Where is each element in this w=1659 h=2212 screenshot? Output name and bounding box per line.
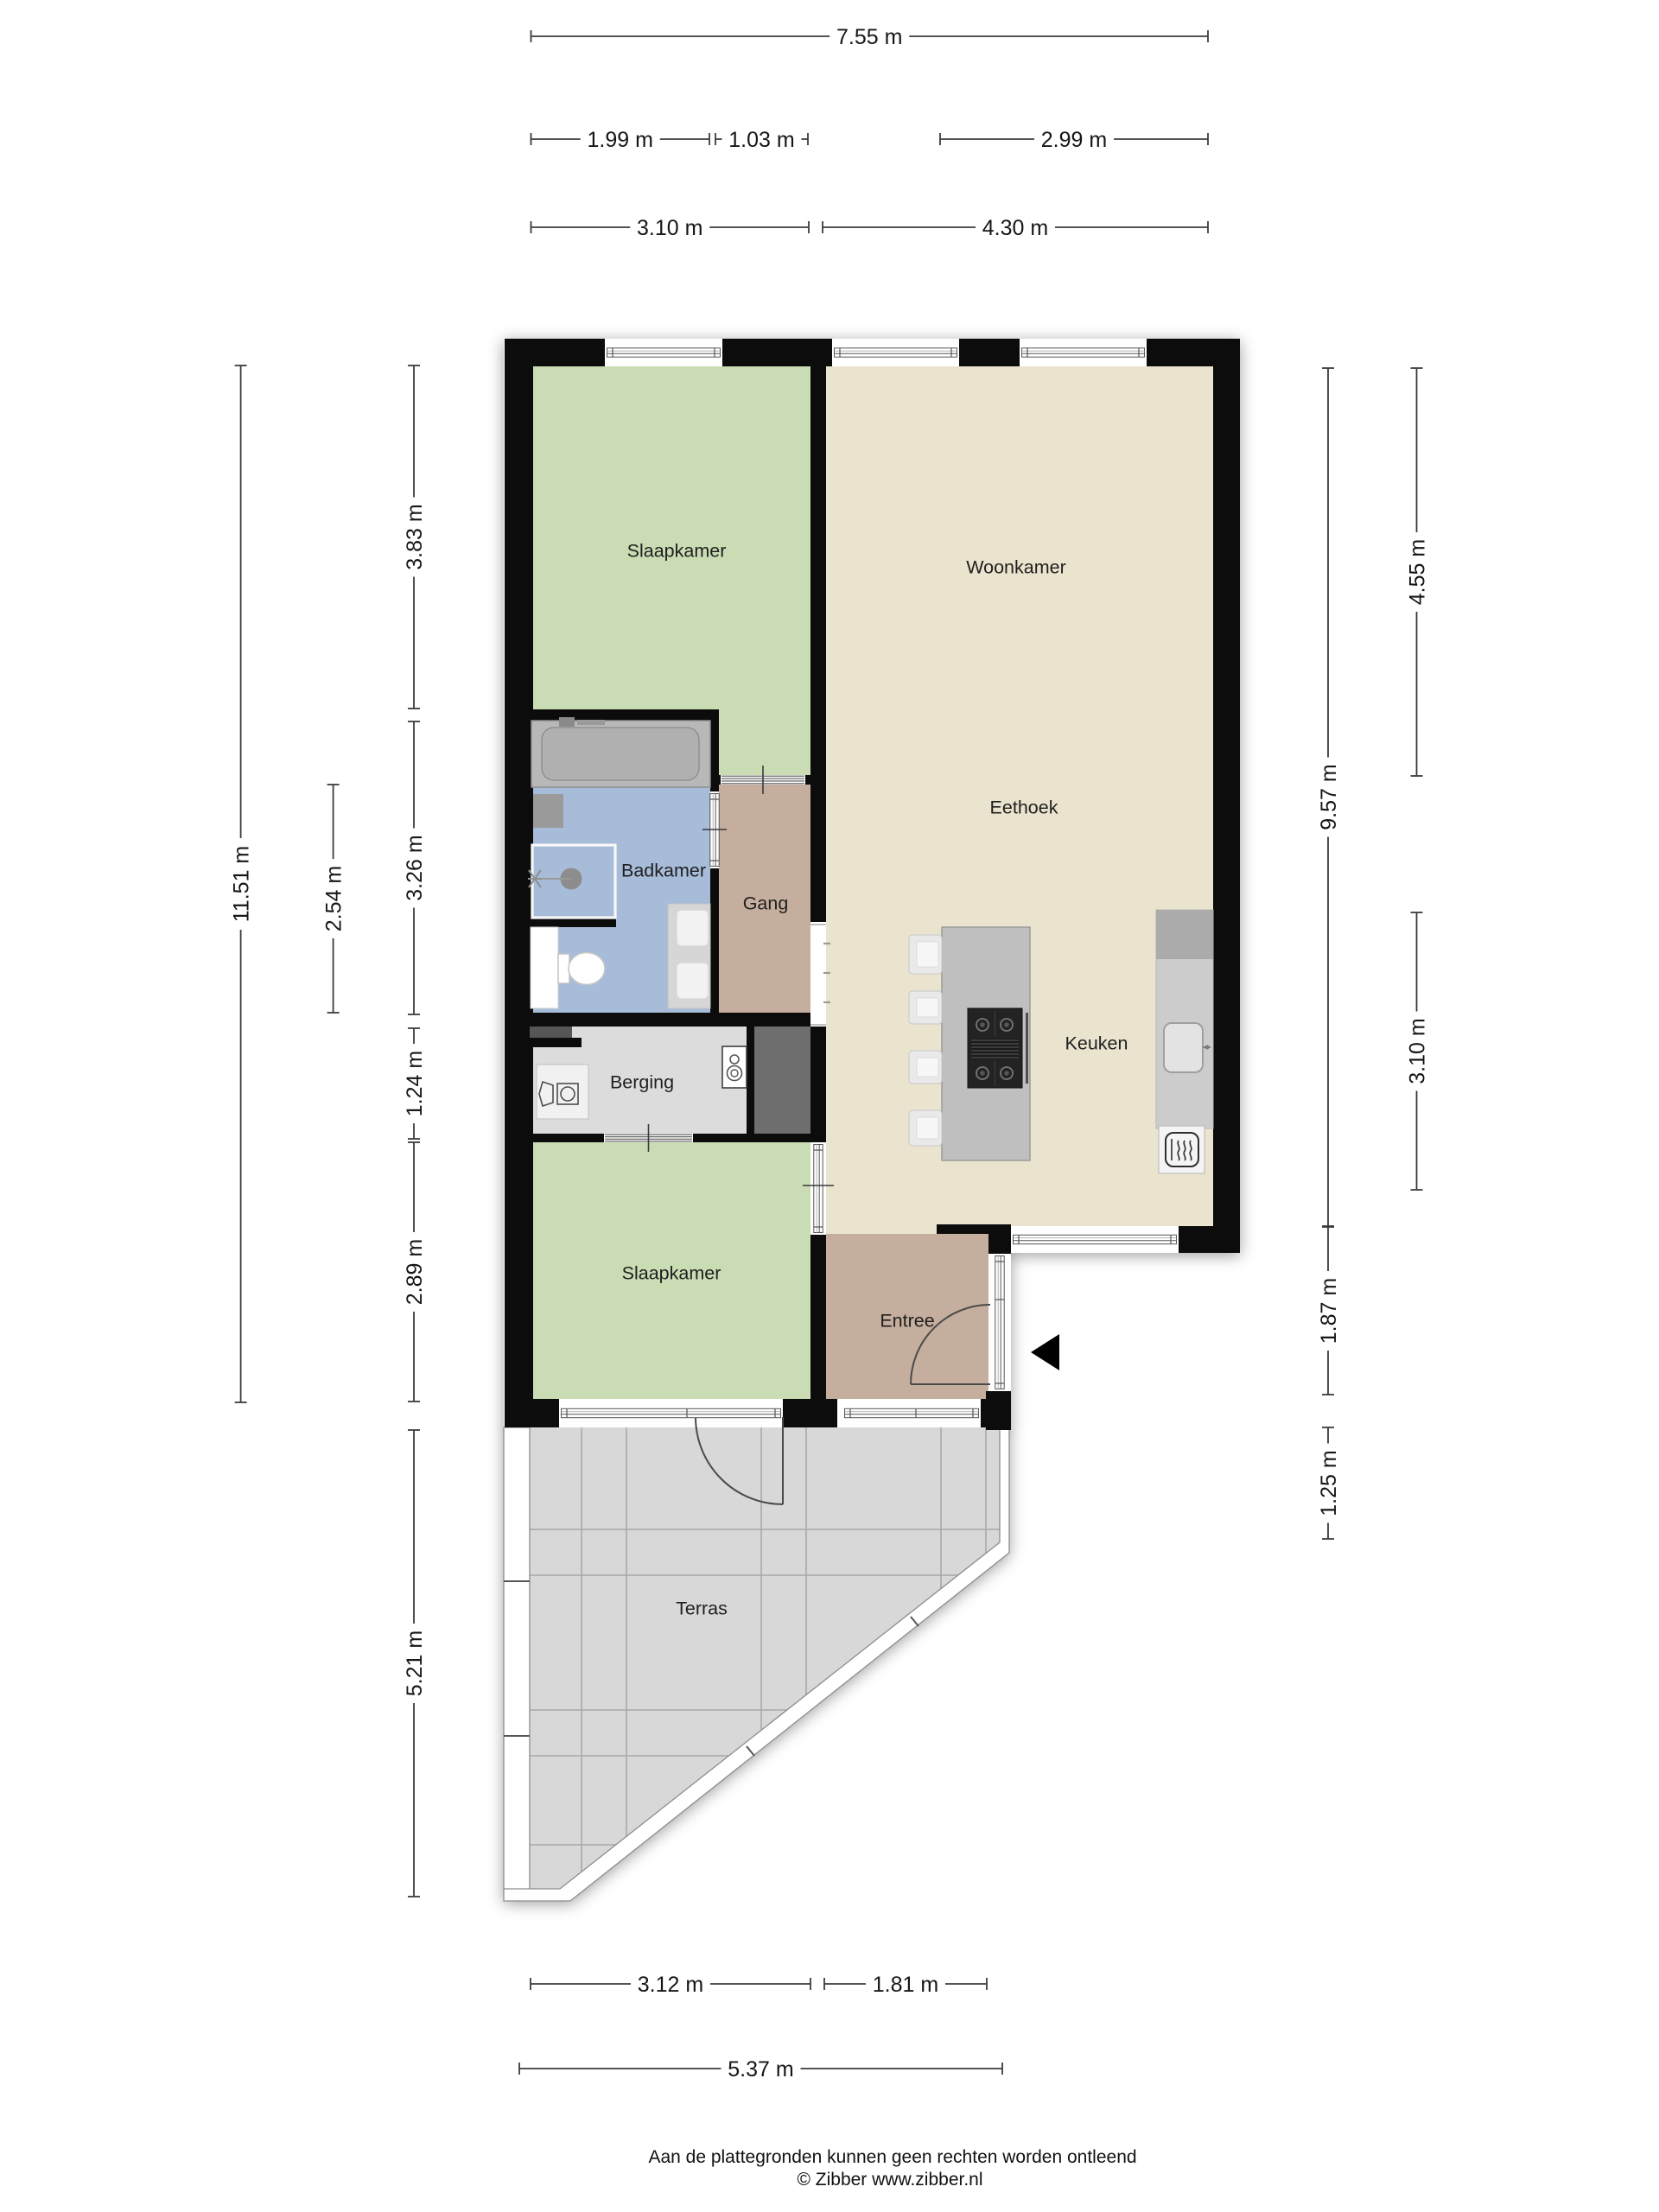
svg-text:5.37 m: 5.37 m bbox=[728, 2057, 793, 2082]
svg-text:4.30 m: 4.30 m bbox=[982, 216, 1048, 240]
svg-text:Slaapkamer: Slaapkamer bbox=[627, 541, 727, 562]
svg-text:11.51 m: 11.51 m bbox=[230, 846, 254, 922]
svg-text:3.12 m: 3.12 m bbox=[638, 1973, 703, 1997]
svg-text:1.03 m: 1.03 m bbox=[728, 128, 794, 152]
svg-text:Eethoek: Eethoek bbox=[990, 798, 1058, 818]
svg-text:1.81 m: 1.81 m bbox=[873, 1973, 938, 1997]
svg-text:Gang: Gang bbox=[743, 893, 789, 914]
svg-text:3.26 m: 3.26 m bbox=[403, 835, 427, 900]
svg-text:4.55 m: 4.55 m bbox=[1406, 539, 1430, 605]
svg-text:7.55 m: 7.55 m bbox=[836, 25, 902, 49]
svg-text:2.89 m: 2.89 m bbox=[403, 1239, 427, 1305]
svg-text:1.99 m: 1.99 m bbox=[588, 128, 653, 152]
svg-text:Entree: Entree bbox=[880, 1311, 934, 1332]
svg-text:Terras: Terras bbox=[676, 1599, 728, 1619]
svg-text:Keuken: Keuken bbox=[1065, 1033, 1128, 1054]
svg-text:1.24 m: 1.24 m bbox=[403, 1051, 427, 1116]
svg-text:5.21 m: 5.21 m bbox=[403, 1630, 427, 1696]
svg-text:2.99 m: 2.99 m bbox=[1041, 128, 1107, 152]
svg-text:3.10 m: 3.10 m bbox=[1406, 1018, 1430, 1084]
svg-text:Slaapkamer: Slaapkamer bbox=[622, 1263, 721, 1284]
svg-text:Badkamer: Badkamer bbox=[621, 861, 706, 881]
svg-text:1.25 m: 1.25 m bbox=[1317, 1450, 1341, 1516]
svg-text:1.87 m: 1.87 m bbox=[1317, 1278, 1341, 1344]
svg-text:Berging: Berging bbox=[610, 1072, 674, 1093]
svg-text:9.57 m: 9.57 m bbox=[1317, 764, 1341, 829]
svg-text:3.83 m: 3.83 m bbox=[403, 504, 427, 569]
svg-text:© Zibber www.zibber.nl: © Zibber www.zibber.nl bbox=[797, 2170, 982, 2190]
svg-text:Woonkamer: Woonkamer bbox=[966, 557, 1066, 578]
svg-text:2.54 m: 2.54 m bbox=[322, 866, 346, 931]
svg-text:3.10 m: 3.10 m bbox=[637, 216, 702, 240]
svg-text:Aan de plattegronden kunnen ge: Aan de plattegronden kunnen geen rechten… bbox=[648, 2147, 1136, 2167]
